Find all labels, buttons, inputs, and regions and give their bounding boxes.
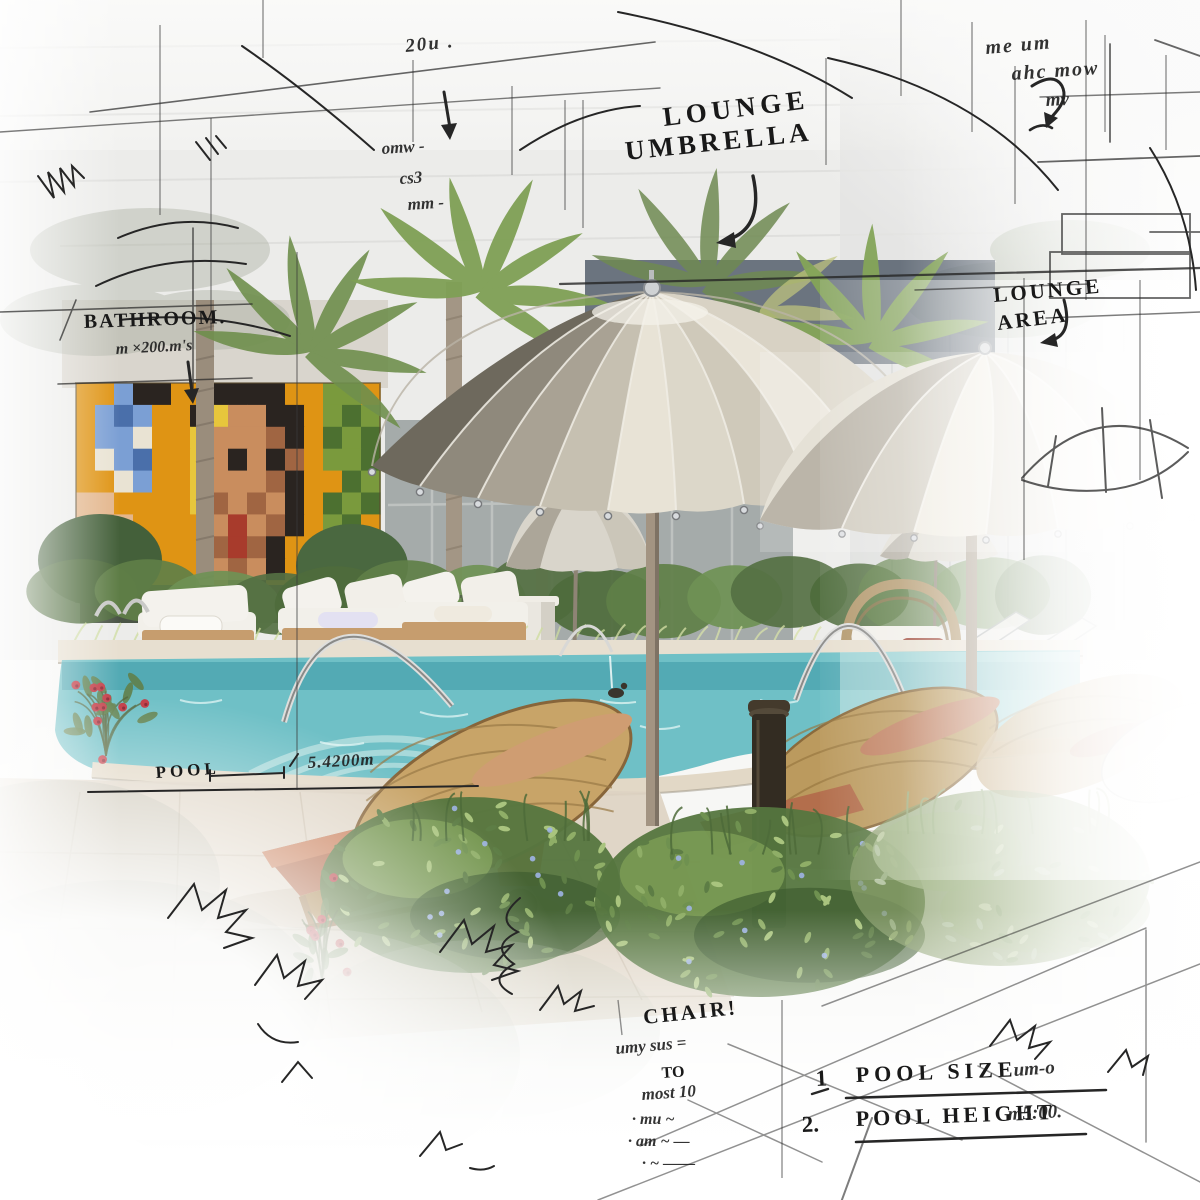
note-chair-line6: · am ~ —	[628, 1133, 690, 1150]
sketch-umbrella-outline	[1022, 408, 1188, 498]
note-left-line3: mm -	[407, 192, 445, 214]
note-chair-line2: umy sus =	[615, 1033, 687, 1058]
note-top-right-line1: me um	[985, 31, 1053, 59]
spec-underline-2	[856, 1134, 1086, 1142]
note-left-line2: cs3	[399, 167, 423, 188]
spec-item-1-num: 1	[815, 1065, 828, 1091]
note-chair-line1: CHAIR!	[642, 995, 739, 1029]
construction-lines	[0, 0, 1200, 1178]
note-chair-line5: · mu ~	[632, 1111, 674, 1128]
note-chair-line4: most 10	[641, 1081, 697, 1104]
note-chair-line7: · ~ ——	[642, 1155, 695, 1172]
spec-item-1-value: um-o	[1013, 1057, 1056, 1081]
note-lounge-area-line2: AREA	[996, 302, 1070, 335]
spec-item-2-value: m5:00.	[1007, 1101, 1062, 1125]
note-chair-line3: TO	[661, 1063, 685, 1082]
arrows	[184, 79, 1067, 404]
pool-concept-sketch: me um ahc mow mv 20u . omw - cs3 mm - LO…	[0, 0, 1200, 1200]
down-arrow-icon	[184, 362, 199, 404]
pool-dimension-lines	[88, 754, 478, 792]
note-bathroom-line1: BATHROOM.	[83, 306, 226, 333]
sketch-ink-layer: me um ahc mow mv 20u . omw - cs3 mm - LO…	[0, 0, 1200, 1200]
note-top-right-line3: mv	[1045, 89, 1070, 111]
down-arrow-icon	[441, 92, 457, 140]
note-lounge-area-line1: LOUNGE	[992, 274, 1103, 307]
note-bathroom-line2: m ×200.m's	[115, 337, 192, 358]
handwritten-annotations: me um ahc mow mv 20u . omw - cs3 mm - LO…	[83, 31, 1106, 1172]
note-20u: 20u .	[403, 31, 455, 57]
spec-item-1-label: POOL SIZE	[855, 1056, 1018, 1087]
note-left-line1: omw -	[381, 136, 426, 158]
spec-item-2-num: 2.	[801, 1111, 819, 1137]
spec-underline-1	[846, 1090, 1106, 1098]
curved-arrow-icon	[716, 176, 756, 248]
spec-list: 1 POOL SIZE um-o 2. POOL HEIGHT m5:00.	[801, 1056, 1106, 1142]
note-pool-value: 5.4200m	[307, 750, 375, 772]
